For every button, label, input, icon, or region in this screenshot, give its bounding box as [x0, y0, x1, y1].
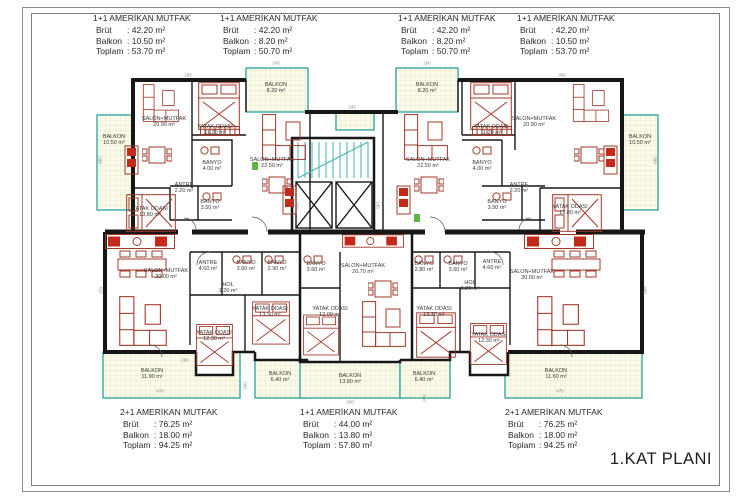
room-label: BALKON6.40 m²: [413, 371, 435, 383]
bed: [303, 315, 339, 355]
room-label: ANTRE4.60 m²: [483, 259, 502, 271]
dining-table: [414, 177, 444, 193]
room-label: BANYO4.00 m²: [202, 160, 221, 172]
sofa: [404, 115, 447, 160]
room-label: SALON+MUTFAK30.00 m²: [144, 268, 188, 280]
entry-marker: [414, 214, 420, 222]
room-label: YATAK ODASI11.20 m²: [197, 124, 232, 136]
room-label: BANYO2.90 m²: [267, 260, 286, 272]
dimension-label: 145: [376, 201, 381, 209]
room-label: YATAK ODASI13.30 m²: [416, 306, 451, 318]
kitchen-counter: [106, 235, 175, 249]
room-label: BALKON6.40 m²: [269, 371, 291, 383]
bed: [470, 83, 512, 130]
dining-table: [368, 281, 398, 297]
dimension-label: 475: [556, 389, 564, 394]
dimension-label: 360: [422, 394, 427, 402]
room-label: SALON+MUTFAK20.90 m²: [512, 116, 556, 128]
room-label: ANTRE2.20 m²: [510, 182, 529, 194]
room-label: YATAK ODASI12.30 m²: [196, 330, 231, 342]
sofa: [573, 84, 609, 121]
room-label: ANTRE4.60 m²: [199, 260, 218, 272]
floor-plan: BALKON10.50 m²SALON+MUTFAK20.90 m²YATAK …: [0, 0, 750, 500]
room-label: BALKON10.50 m²: [103, 134, 125, 146]
dimension-label: 240: [295, 201, 300, 209]
room-label: BALKON11.60 m²: [545, 368, 567, 380]
room-label: BANYO3.60 m²: [236, 260, 255, 272]
room-label: BALKON11.90 m²: [141, 368, 163, 380]
floor-plan-drawing: [0, 0, 750, 500]
room-label: HOL1.20 m²: [219, 282, 238, 294]
room-label: BALKON13.80 m²: [339, 373, 361, 385]
dining-table: [574, 147, 604, 163]
room-label: YATAK ODASI12.00 m²: [312, 306, 347, 318]
room-label: BANYO2.80 m²: [414, 261, 433, 273]
dimension-label: 260: [423, 61, 431, 66]
room-label: YATAK ODASI13.30 m²: [252, 306, 287, 318]
room-label: HOL1.20 m²: [461, 280, 480, 292]
room-label: BALKON8.20 m²: [265, 82, 287, 94]
room-label: SALON+MUTFAK20.70 m²: [341, 263, 385, 275]
kitchen-counter: [525, 235, 594, 249]
room-label: YATAK ODASI11.20 m²: [473, 124, 508, 136]
kitchen-counter: [342, 235, 403, 247]
room-label: SALON+MUTFAK20.90 m²: [142, 116, 186, 128]
plan-title: 1.KAT PLANI: [610, 450, 712, 469]
room-label: SALON+MUTFAK22.50 m²: [406, 157, 450, 169]
bed: [198, 83, 240, 130]
room-label: YATAK ODASI12.30 m²: [471, 332, 506, 344]
dining-table: [552, 251, 600, 277]
room-label: BANYO3.50 m²: [487, 199, 506, 211]
room-label: BANYO4.00 m²: [472, 160, 491, 172]
dimension-label: 200: [98, 156, 103, 164]
room-label: BANYO3.60 m²: [306, 261, 325, 273]
dimension-label: 290: [243, 381, 248, 389]
sofa: [119, 297, 166, 346]
sofa: [362, 302, 405, 347]
bathroom-fixtures: [473, 147, 491, 154]
dimension-label: 260: [272, 61, 280, 66]
dimension-label: 440: [643, 286, 648, 294]
dimension-label: 290: [181, 358, 189, 363]
dimension-label: 180: [348, 105, 356, 110]
dimension-label: 300: [558, 73, 566, 78]
dimension-label: 410: [99, 286, 104, 294]
room-label: BANYO3.50 m²: [200, 199, 219, 211]
room-label: BANYO3.60 m²: [448, 261, 467, 273]
room-label: YATAK ODASI13.80 m²: [552, 204, 587, 216]
stairs: [298, 142, 368, 178]
dimension-label: 290: [184, 73, 192, 78]
room-label: SALON+MUTFAK30.00 m²: [510, 269, 554, 281]
room-label: ANTRE2.20 m²: [175, 182, 194, 194]
room-label: SALON+MUTFAK22.50 m²: [250, 157, 294, 169]
dimension-label: 300: [346, 400, 354, 405]
dimension-label: 200: [653, 156, 658, 164]
elevators: [296, 182, 372, 228]
room-label: BALKON8.20 m²: [416, 82, 438, 94]
dining-table: [142, 147, 172, 163]
room-label: BALKON10.50 m²: [629, 134, 651, 146]
dimension-label: 470: [156, 389, 164, 394]
room-label: YATAK ODASI13.80 m²: [132, 206, 167, 218]
bathroom-fixtures: [201, 147, 219, 154]
bed: [416, 313, 456, 357]
sofa: [537, 297, 584, 346]
